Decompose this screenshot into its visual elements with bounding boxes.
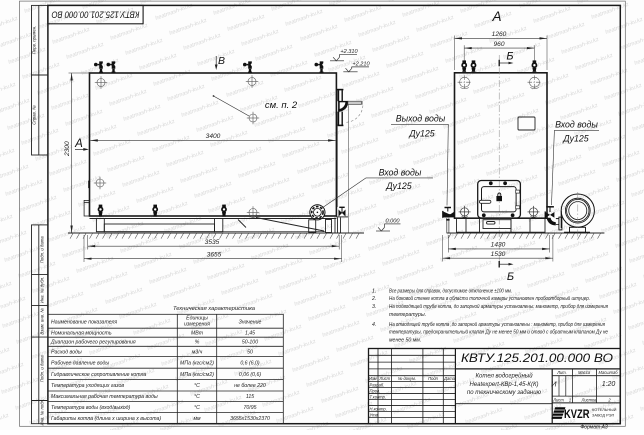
svg-text:3655х1530х2370: 3655х1530х2370	[230, 416, 270, 422]
svg-text:1,45: 1,45	[245, 331, 255, 337]
svg-text:Масса: Масса	[578, 370, 591, 375]
svg-text:0.000: 0.000	[386, 218, 401, 224]
svg-text:Лист: Лист	[552, 397, 564, 402]
svg-text:2.: 2.	[371, 296, 376, 302]
svg-text:Техническая характеристика: Техническая характеристика	[173, 306, 256, 312]
svg-text:температуры.: температуры.	[389, 312, 426, 318]
svg-text:Ду125: Ду125	[562, 134, 588, 144]
svg-text:0,06 (0,6): 0,06 (0,6)	[239, 372, 261, 378]
svg-text:Б: Б	[506, 51, 513, 63]
svg-text:70/95: 70/95	[244, 405, 257, 411]
svg-text:°С: °С	[194, 383, 200, 389]
svg-text:960: 960	[493, 41, 504, 48]
svg-text:Температура воды (вход/выход): Температура воды (вход/выход)	[51, 405, 130, 411]
svg-text:Номинальная мощность: Номинальная мощность	[51, 331, 112, 337]
svg-text:Перв. примен.: Перв. примен.	[32, 26, 37, 55]
svg-text:по техническому заданию: по техническому заданию	[467, 390, 542, 396]
svg-text:Температура уходящих газов: Температура уходящих газов	[51, 383, 124, 389]
svg-text:А: А	[491, 9, 501, 24]
svg-text:Лит.: Лит.	[556, 370, 567, 375]
svg-text:Формат А3: Формат А3	[580, 425, 608, 431]
svg-text:Ду125: Ду125	[408, 129, 434, 139]
svg-text:КОТЕЛЬНЫЙ: КОТЕЛЬНЫЙ	[592, 407, 617, 412]
svg-text:3655: 3655	[207, 251, 222, 258]
svg-text:Разраб.: Разраб.	[370, 382, 385, 387]
svg-text:измерения: измерения	[184, 322, 210, 328]
svg-text:1:20: 1:20	[602, 381, 616, 388]
svg-text:менее 50 мм.: менее 50 мм.	[389, 337, 421, 343]
svg-text:3.: 3.	[372, 304, 376, 310]
svg-text:Дата: Дата	[443, 376, 456, 381]
svg-text:Единицы: Единицы	[186, 315, 208, 321]
svg-text:А: А	[74, 138, 83, 150]
svg-text:Ду125: Ду125	[385, 181, 411, 191]
svg-text:Инв. № подл.: Инв. № подл.	[40, 399, 45, 426]
svg-text:КВТУ.125.201.00.000 ВО: КВТУ.125.201.00.000 ВО	[461, 351, 613, 365]
svg-text:0,6 (6,0): 0,6 (6,0)	[240, 360, 260, 366]
svg-text:Расход воды: Расход воды	[51, 349, 82, 355]
svg-text:3535: 3535	[205, 239, 220, 246]
svg-text:Утв.: Утв.	[370, 412, 379, 417]
svg-text:Листов: Листов	[581, 397, 598, 402]
svg-text:На боковой стенке котла в обла: На боковой стенке котла в области топочн…	[389, 295, 590, 302]
svg-text:Пров.: Пров.	[370, 388, 381, 393]
svg-text:м3/ч: м3/ч	[192, 349, 203, 355]
svg-text:Вход воды: Вход воды	[379, 168, 422, 178]
svg-text:4.: 4.	[372, 322, 376, 328]
svg-text:Гидравлическое сопротивление к: Гидравлическое сопротивление котла	[51, 372, 146, 378]
svg-text:Диапазон рабочего регулировани: Диапазон рабочего регулирования	[50, 340, 136, 346]
svg-text:Наименование показателя: Наименование показателя	[51, 319, 117, 325]
svg-text:Heatexpert-КВр-1,45-К(К): Heatexpert-КВр-1,45-К(К)	[470, 382, 539, 388]
svg-text:Котел водогрейный: Котел водогрейный	[475, 372, 533, 379]
svg-text:На подводящей трубе котла, д: На подводящей трубе котла, до запорной а…	[389, 303, 608, 310]
svg-text:Справ. №: Справ. №	[32, 105, 37, 125]
svg-text:Подп. и дата: Подп. и дата	[40, 236, 45, 264]
svg-text:Подп. и дата: Подп. и дата	[40, 355, 45, 383]
svg-text:1.: 1.	[372, 289, 376, 295]
svg-text:+2.310: +2.310	[340, 49, 358, 55]
svg-text:2300: 2300	[64, 141, 71, 157]
svg-text:Максимальная рабочая температу: Максимальная рабочая температура воды	[51, 394, 158, 400]
svg-text:50-100: 50-100	[242, 340, 258, 346]
svg-text:ЗАВОД РЭП: ЗАВОД РЭП	[592, 413, 614, 418]
svg-text:не более 220: не более 220	[234, 383, 266, 389]
svg-text:Н.контр.: Н.контр.	[370, 406, 387, 411]
svg-text:Взам. инв. №: Взам. инв. №	[40, 308, 45, 335]
svg-text:°С: °С	[194, 394, 200, 400]
svg-text:Вход воды: Вход воды	[555, 120, 598, 130]
svg-text:КВТУ.125.201.00.000 ВО: КВТУ.125.201.00.000 ВО	[51, 10, 140, 21]
svg-text:Масштаб: Масштаб	[598, 370, 618, 375]
svg-text:Рабочее давление воды: Рабочее давление воды	[51, 360, 109, 366]
svg-text:На отводящей трубе котла ,до з: На отводящей трубе котла ,до запорной ар…	[389, 321, 605, 328]
svg-text:1530: 1530	[491, 251, 506, 258]
svg-text:50: 50	[247, 349, 253, 355]
svg-text:Лист: Лист	[379, 376, 391, 381]
svg-text:Выход воды: Выход воды	[396, 114, 446, 124]
svg-text:температуры, предохранительный: температуры, предохранительный клапан Ду…	[389, 329, 608, 336]
svg-text:KVZR: KVZR	[564, 407, 590, 421]
svg-text:Подп: Подп	[428, 376, 439, 381]
svg-text:115: 115	[246, 394, 254, 400]
svg-text:Инв. № дубл.: Инв. № дубл.	[40, 277, 45, 303]
svg-text:МПа (кгс/см2): МПа (кгс/см2)	[180, 372, 214, 378]
svg-text:мм: мм	[193, 416, 201, 422]
svg-text:см. п. 2: см. п. 2	[265, 100, 298, 111]
svg-text:Все размеры для справок, допус: Все размеры для справок, допустимое откл…	[389, 289, 512, 295]
svg-text:Габариты котла (длина х ширина: Габариты котла (длина х ширина х высота)	[51, 416, 161, 422]
svg-text:МПа (кгс/см2): МПа (кгс/см2)	[180, 360, 214, 366]
svg-text:+2.210: +2.210	[352, 61, 370, 67]
svg-text:Т.контр.: Т.контр.	[370, 394, 387, 399]
svg-text:В: В	[218, 55, 225, 67]
svg-text:Значение: Значение	[239, 319, 262, 325]
svg-text:Изм: Изм	[369, 376, 377, 381]
svg-text:°С: °С	[194, 405, 200, 411]
svg-text:%: %	[195, 340, 200, 346]
svg-text:1260: 1260	[492, 31, 507, 38]
svg-text:Б: Б	[507, 271, 514, 283]
svg-text:1: 1	[569, 397, 571, 402]
svg-text:1430: 1430	[491, 242, 506, 249]
svg-text:МВт: МВт	[191, 331, 204, 337]
svg-text:№ докум.: № докум.	[398, 376, 416, 381]
svg-text:3400: 3400	[206, 133, 221, 140]
svg-text:И: И	[551, 380, 557, 389]
